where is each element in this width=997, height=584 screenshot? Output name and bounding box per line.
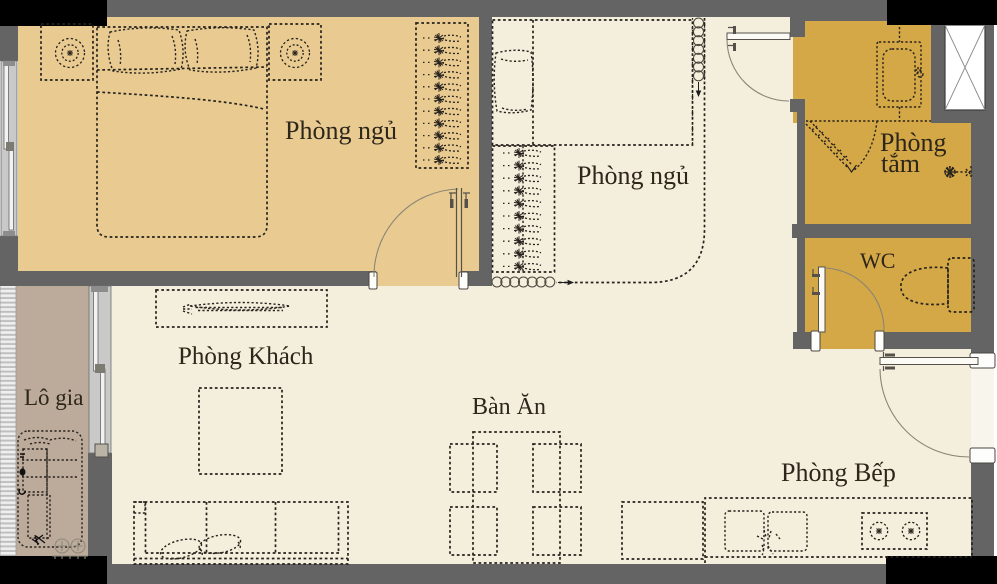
svg-text:Phòng ngủ: Phòng ngủ	[285, 116, 397, 145]
svg-text:WC: WC	[860, 248, 895, 273]
svg-text:Phòng ngủ: Phòng ngủ	[577, 161, 689, 190]
svg-text:Bàn Ăn: Bàn Ăn	[472, 394, 546, 420]
svg-text:Phòng Bếp: Phòng Bếp	[781, 458, 896, 487]
svg-text:tắm: tắm	[881, 149, 920, 178]
svg-text:Phòng Khách: Phòng Khách	[178, 343, 314, 370]
svg-text:Lô gia: Lô gia	[24, 385, 83, 410]
